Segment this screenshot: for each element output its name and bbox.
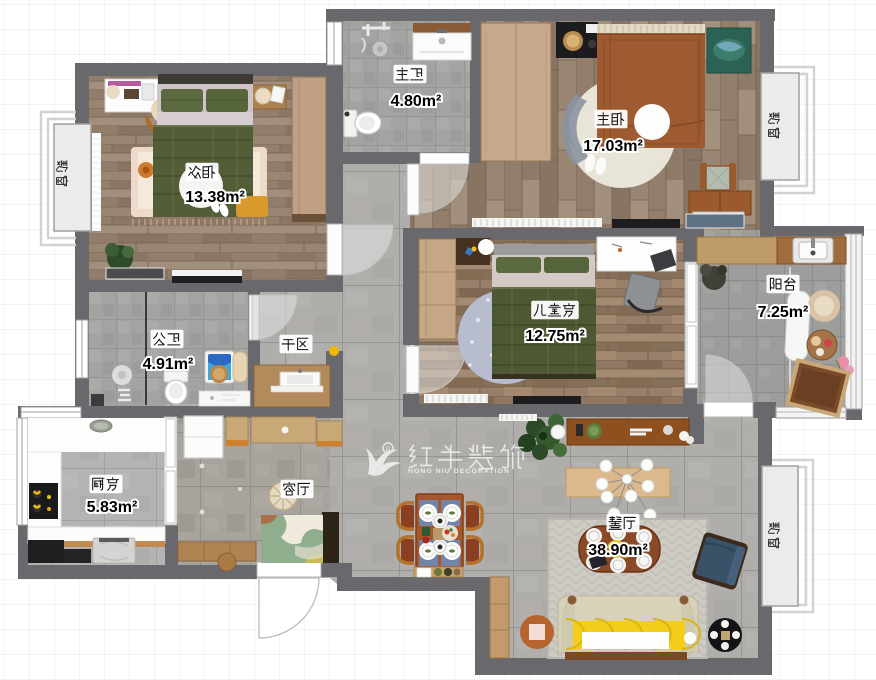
- svg-text:38.90m²: 38.90m²: [588, 542, 648, 559]
- svg-text:5.83m²: 5.83m²: [87, 499, 138, 516]
- svg-text:4.80m²: 4.80m²: [391, 93, 442, 110]
- svg-text:12.75m²: 12.75m²: [525, 328, 585, 345]
- svg-text:13.38m²: 13.38m²: [185, 189, 245, 206]
- svg-text:R: R: [385, 447, 390, 454]
- svg-text:7.25m²: 7.25m²: [758, 304, 809, 321]
- svg-text:HONG NIU DECORATION: HONG NIU DECORATION: [408, 468, 510, 475]
- svg-text:4.91m²: 4.91m²: [143, 356, 194, 373]
- svg-text:17.03m²: 17.03m²: [583, 138, 643, 155]
